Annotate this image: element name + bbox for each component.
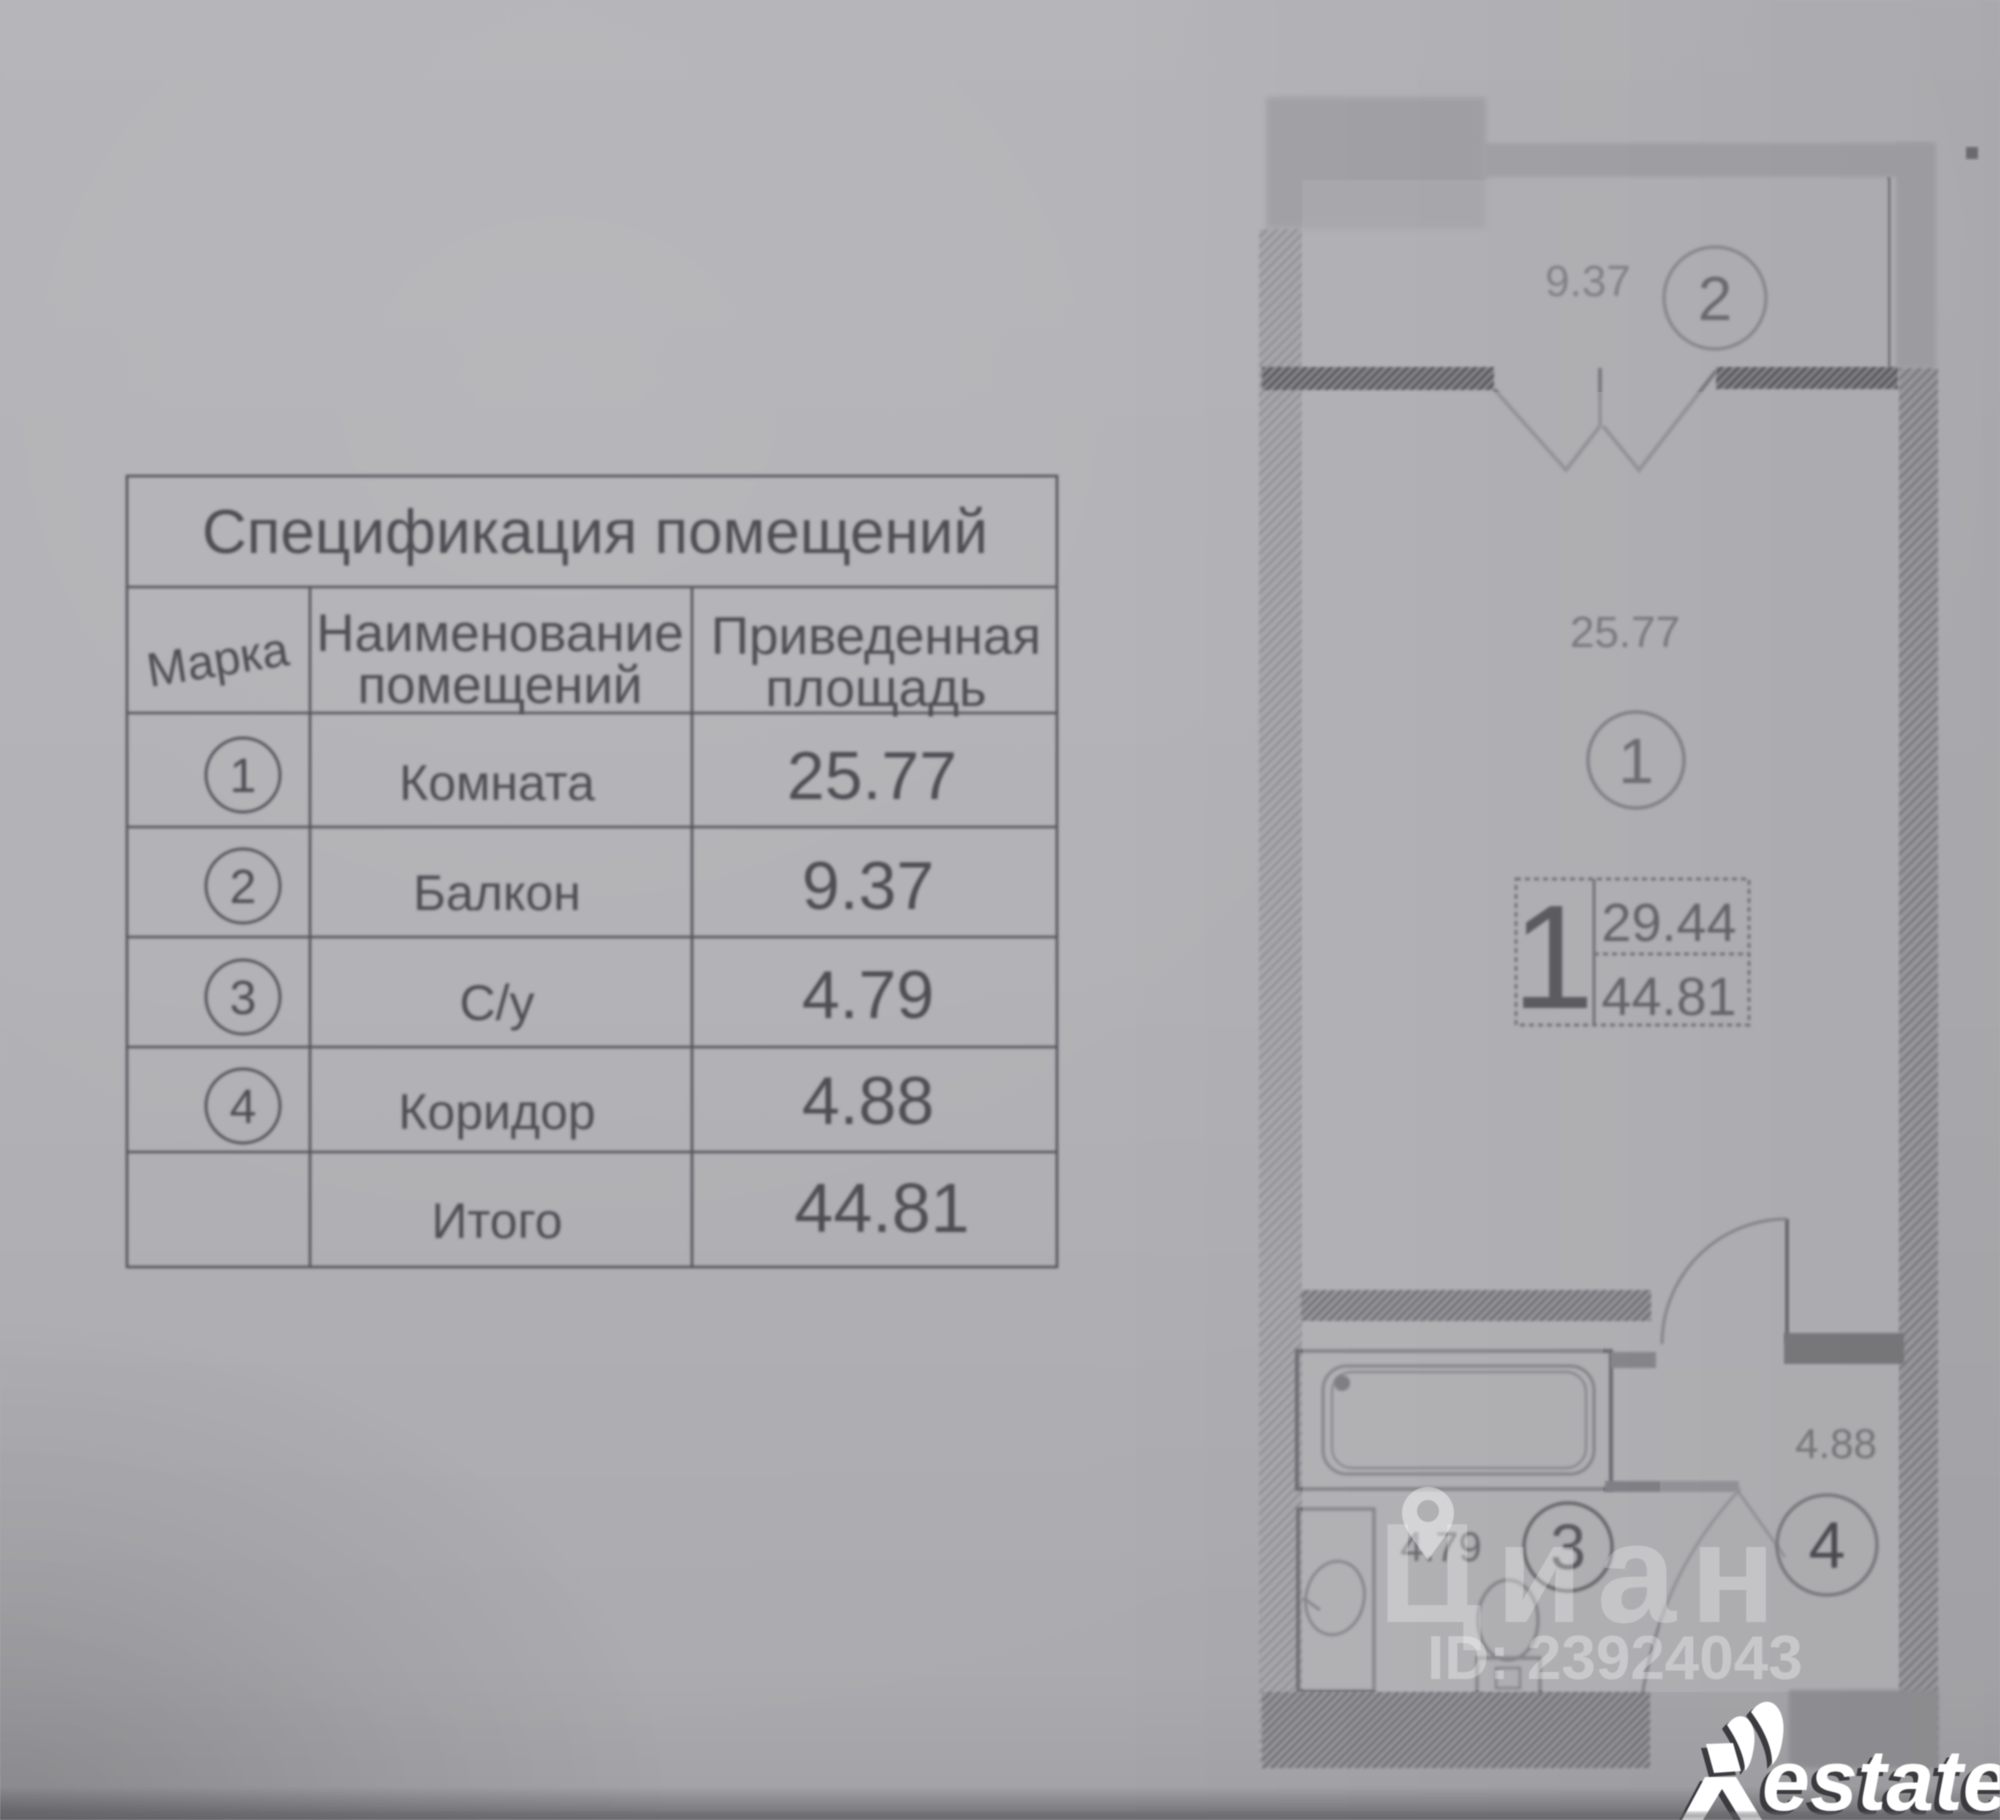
svg-text:1: 1 [230,750,257,803]
svg-text:Коридор: Коридор [398,1084,595,1140]
svg-text:Спецификация помещений: Спецификация помещений [202,498,988,567]
svg-text:Наименование: Наименование [316,604,683,663]
svg-text:25.77: 25.77 [787,738,957,814]
svg-text:4.88: 4.88 [802,1063,934,1139]
svg-text:ID: 23924043: ID: 23924043 [1427,1624,1803,1693]
svg-text:4.79: 4.79 [802,957,934,1033]
svg-text:2: 2 [230,861,257,914]
svg-text:9.37: 9.37 [802,848,934,924]
svg-text:С/у: С/у [460,975,535,1031]
svg-text:estate: estate [1762,1733,2000,1820]
svg-text:4: 4 [230,1081,257,1134]
svg-text:3: 3 [230,972,257,1025]
svg-text:Балкон: Балкон [413,865,581,921]
svg-text:помещений: помещений [357,656,642,715]
svg-text:Приведенная: Приведенная [711,607,1041,666]
svg-text:Комната: Комната [399,755,595,811]
svg-text:площадь: площадь [765,659,986,718]
